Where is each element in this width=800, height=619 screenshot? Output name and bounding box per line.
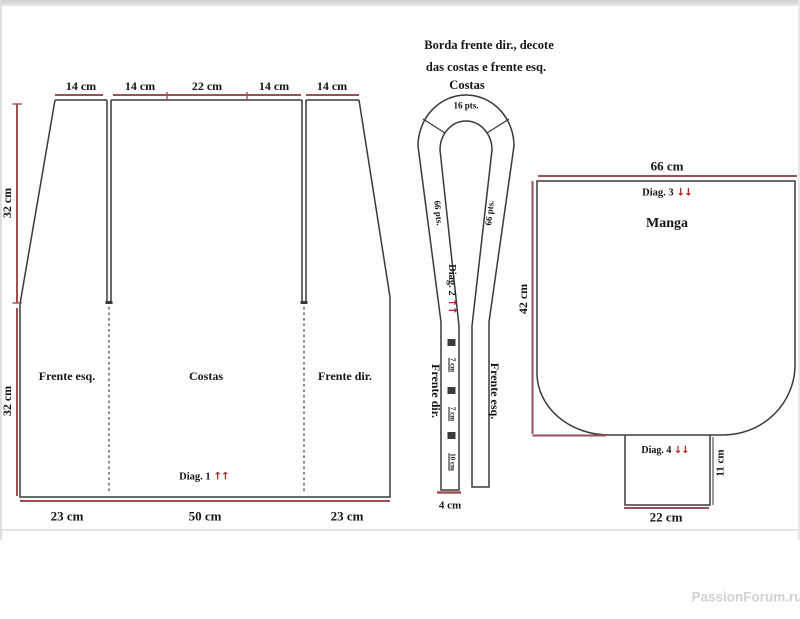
diag2-text: Diag. 2 [446,264,457,296]
diag2-arrows-icon: ↑↑ [446,298,458,314]
neckband-title-line3: Costas [449,79,484,92]
cuff-11cm-label: 11 cm [716,449,727,476]
pattern-line-art [0,0,800,619]
neckband-4cm-label: 4 cm [439,501,461,512]
dim-top-right: 14 cm [317,80,347,92]
diag1-text: Diag. 1 [179,471,211,482]
dim-bottom-mid: 50 cm [189,510,222,523]
neckband-frente-dir-label: Frente dir. [430,364,442,418]
buttonhole-marks [448,339,456,439]
sleeve-66cm-label: 66 cm [651,160,684,173]
neckband-outline [418,95,514,490]
diag1-label: Diag. 1 ↑↑ [179,471,229,483]
dim-left-upper: 32 cm [1,188,13,218]
neckband-mark-7cm-1: 7 cm [449,358,456,372]
body-piece-outline [20,100,390,497]
neckband-frente-esq-label: Frente esq. [489,363,501,419]
neckband-mark-10cm: 10 cm [449,453,456,471]
neckband-title-line1: Borda frente dir., decote [424,39,554,52]
diag3-arrows-icon: ↓↓ [676,186,692,198]
diag4-arrows-icon: ↓↓ [674,445,689,456]
neckband-left-66pts-label: 66 pts. [432,200,444,226]
diag2-label: Diag. 2 ↑↑ [445,264,457,314]
diag4-label: Diag. 4 ↓↓ [641,446,688,456]
body-dimension-lines [13,92,391,501]
diag4-text: Diag. 4 [641,445,671,456]
panel-label-frente-esq: Frente esq. [39,370,95,382]
band-segment-line [423,119,445,133]
dim-top-mid-3: 14 cm [259,80,289,92]
watermark: PassionForum.ru [691,590,800,605]
dim-top-mid-2: 22 cm [192,80,222,92]
panel-label-costas: Costas [189,370,223,382]
dim-top-left: 14 cm [66,80,96,92]
cuff-22cm-label: 22 cm [650,511,683,524]
neckband-mark-7cm-2: 7 cm [449,407,456,421]
diag1-arrows-icon: ↑↑ [213,470,229,482]
band-segment-line [487,119,509,133]
diag3-text: Diag. 3 [642,187,674,198]
neckband-title-line2: das costas e frente esq. [426,61,546,74]
dim-left-lower: 32 cm [1,386,13,416]
dim-top-mid-1: 14 cm [125,80,155,92]
neckband-16pts-label: 16 pts. [453,102,478,111]
sleeve-manga-label: Manga [646,217,688,231]
dim-bottom-left: 23 cm [51,510,84,523]
panel-label-frente-dir: Frente dir. [318,370,372,382]
sewing-pattern-diagram: 14 cm 14 cm 22 cm 14 cm 14 cm 32 cm 32 c… [0,0,800,619]
diag3-label: Diag. 3 ↓↓ [642,187,692,199]
sleeve-42cm-label: 42 cm [517,284,529,314]
dim-bottom-right: 23 cm [331,510,364,523]
